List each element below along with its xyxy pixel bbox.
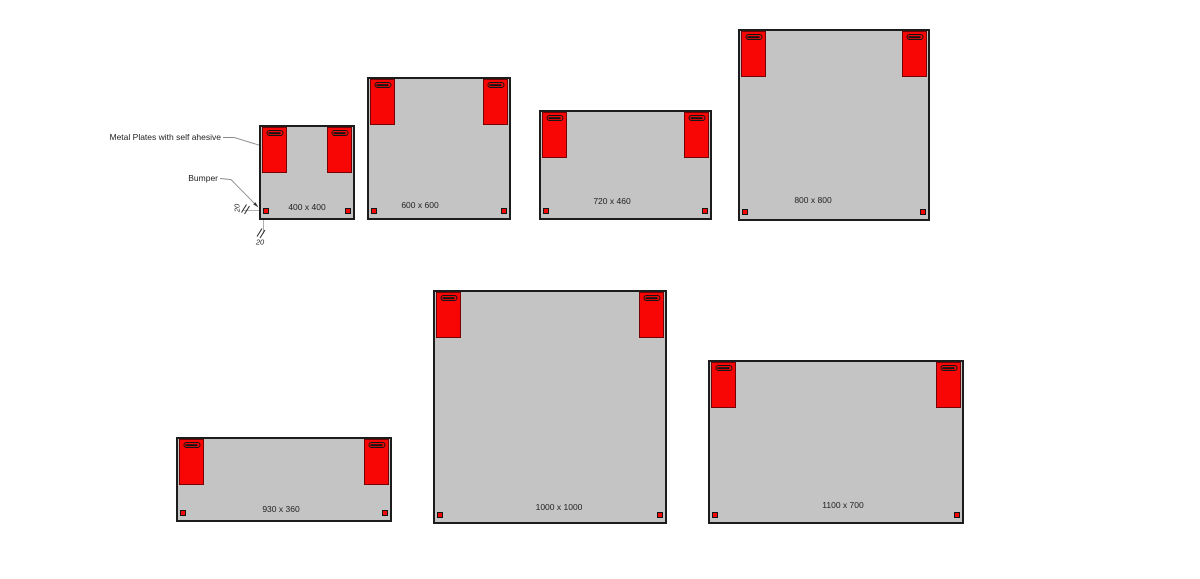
- bumper: [657, 512, 663, 518]
- diagram-canvas: Metal Plates with self ahesive Bumper 20…: [0, 0, 1200, 579]
- dim-20-side-label: 20: [233, 204, 242, 212]
- metal-plate: [262, 127, 287, 173]
- metal-plate: [542, 112, 567, 158]
- bumper: [742, 209, 748, 215]
- bumper: [345, 208, 351, 214]
- metal-plate: [364, 439, 389, 485]
- bumper: [954, 512, 960, 518]
- panel-size-label: 400 x 400: [288, 202, 325, 212]
- mounting-slot-icon: [745, 34, 762, 40]
- panel: 600 x 600: [367, 77, 511, 220]
- panel: 720 x 460: [539, 110, 712, 220]
- mounting-slot-icon: [487, 82, 504, 88]
- dim-side-tick-icon: [242, 205, 247, 213]
- mounting-slot-icon: [906, 34, 923, 40]
- metal-plates-leader-line: [223, 138, 262, 147]
- dim-bottom-tick-icon: [257, 229, 262, 237]
- bumper: [702, 208, 708, 214]
- panel-size-label: 720 x 460: [593, 196, 630, 206]
- bumper: [437, 512, 443, 518]
- panel-size-label: 930 x 360: [262, 504, 299, 514]
- mounting-slot-icon: [374, 82, 391, 88]
- bumper: [263, 208, 269, 214]
- metal-plate: [179, 439, 204, 485]
- mounting-slot-icon: [331, 130, 348, 136]
- metal-plate: [327, 127, 352, 173]
- panel: 800 x 800: [738, 29, 930, 221]
- mounting-slot-icon: [715, 365, 732, 371]
- bumper: [712, 512, 718, 518]
- panel: 1000 x 1000: [433, 290, 667, 524]
- bumper: [371, 208, 377, 214]
- panel: 930 x 360: [176, 437, 392, 522]
- dim-20-bottom-label: 20: [256, 238, 264, 247]
- bumper: [501, 208, 507, 214]
- metal-plate: [436, 292, 461, 338]
- mounting-slot-icon: [368, 442, 385, 448]
- bumper-label: Bumper: [90, 173, 218, 184]
- metal-plate: [711, 362, 736, 408]
- bumper-leader-arrowhead-icon: [253, 202, 258, 207]
- mounting-slot-icon: [266, 130, 283, 136]
- mounting-slot-icon: [688, 115, 705, 121]
- metal-plate: [370, 79, 395, 125]
- mounting-slot-icon: [546, 115, 563, 121]
- metal-plate: [684, 112, 709, 158]
- metal-plate: [483, 79, 508, 125]
- mounting-slot-icon: [940, 365, 957, 371]
- bumper: [543, 208, 549, 214]
- bumper: [382, 510, 388, 516]
- bumper-leader-line: [220, 179, 256, 206]
- panel-size-label: 1000 x 1000: [536, 502, 583, 512]
- bumper: [180, 510, 186, 516]
- mounting-slot-icon: [440, 295, 457, 301]
- dim-side-tick-icon: [245, 206, 250, 214]
- mounting-slot-icon: [183, 442, 200, 448]
- metal-plate: [741, 31, 766, 77]
- panel-size-label: 1100 x 700: [822, 500, 863, 510]
- metal-plate: [936, 362, 961, 408]
- metal-plate: [639, 292, 664, 338]
- panel-size-label: 600 x 600: [401, 200, 438, 210]
- panel: 400 x 400: [259, 125, 355, 220]
- bumper: [920, 209, 926, 215]
- mounting-slot-icon: [643, 295, 660, 301]
- metal-plate: [902, 31, 927, 77]
- metal-plates-label: Metal Plates with self ahesive: [90, 132, 221, 143]
- panel: 1100 x 700: [708, 360, 964, 524]
- panel-size-label: 800 x 800: [794, 195, 831, 205]
